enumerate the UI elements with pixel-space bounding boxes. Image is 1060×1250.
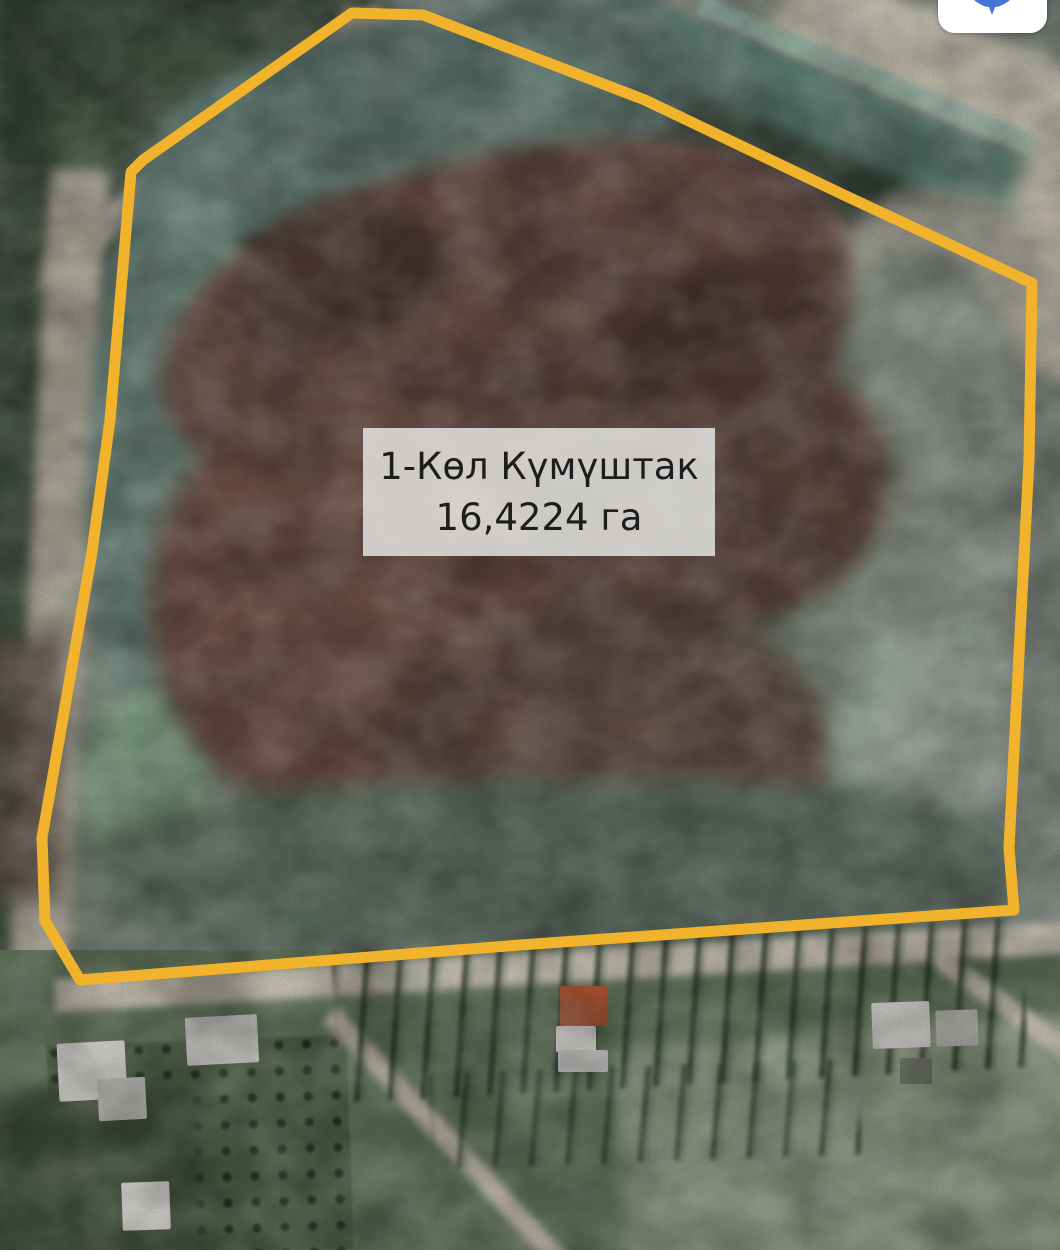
map-canvas[interactable]: 1-Көл Күмүштак 16,4224 га xyxy=(0,0,1060,1250)
building xyxy=(935,1009,978,1046)
building-orange-roof xyxy=(560,986,608,1026)
parcel-label: 1-Көл Күмүштак 16,4224 га xyxy=(363,428,715,556)
terrain-reedbed-dark-patch xyxy=(250,200,450,340)
building xyxy=(900,1058,932,1084)
terrain-scrub-left xyxy=(0,640,60,900)
building xyxy=(121,1181,171,1231)
directions-button[interactable] xyxy=(938,0,1047,33)
terrain-poplar-row xyxy=(428,1059,861,1170)
navigation-icon xyxy=(974,0,1010,15)
building xyxy=(185,1014,259,1066)
building xyxy=(97,1077,147,1121)
parcel-area: 16,4224 га xyxy=(436,492,643,543)
terrain-reedbed-dark-patch xyxy=(600,250,840,410)
building xyxy=(558,1050,608,1072)
building xyxy=(556,1026,596,1052)
parcel-name: 1-Көл Күмүштак xyxy=(379,441,699,492)
building xyxy=(871,1001,931,1049)
